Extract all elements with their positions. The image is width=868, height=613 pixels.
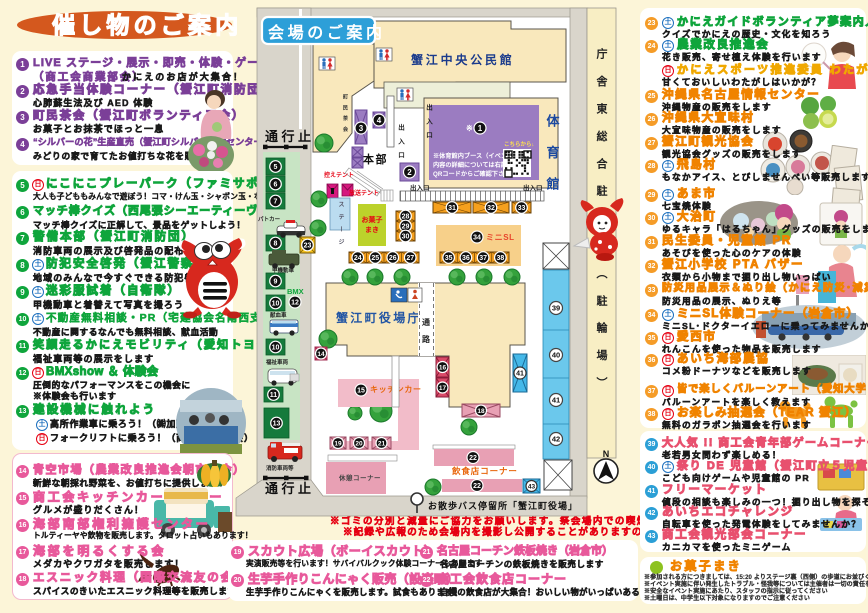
svg-text:BMX: BMX bbox=[287, 287, 304, 296]
svg-text:3: 3 bbox=[359, 124, 364, 133]
svg-text:本部: 本部 bbox=[363, 152, 388, 166]
svg-text:体育館: 体育館 bbox=[545, 113, 560, 208]
svg-text:35: 35 bbox=[445, 255, 453, 262]
svg-text:N: N bbox=[603, 449, 610, 459]
svg-text:32: 32 bbox=[487, 205, 495, 212]
svg-text:8: 8 bbox=[274, 241, 278, 248]
svg-text:39: 39 bbox=[552, 304, 560, 313]
svg-text:20: 20 bbox=[355, 440, 363, 447]
svg-text:22: 22 bbox=[473, 483, 481, 490]
svg-text:5: 5 bbox=[274, 164, 278, 171]
svg-text:町民茶会: 町民茶会 bbox=[342, 94, 349, 138]
svg-text:27: 27 bbox=[406, 255, 414, 262]
svg-text:40: 40 bbox=[552, 351, 560, 360]
svg-text:福祉車両: 福祉車両 bbox=[265, 358, 289, 366]
svg-text:25: 25 bbox=[371, 255, 379, 262]
svg-text:22: 22 bbox=[469, 455, 477, 462]
svg-text:41: 41 bbox=[516, 371, 524, 378]
svg-text:6: 6 bbox=[274, 182, 278, 189]
svg-text:4: 4 bbox=[377, 116, 382, 125]
svg-text:10: 10 bbox=[272, 301, 280, 308]
svg-text:41: 41 bbox=[552, 396, 560, 405]
svg-text:2: 2 bbox=[407, 168, 412, 177]
svg-text:7: 7 bbox=[274, 199, 278, 206]
svg-text:33: 33 bbox=[518, 205, 526, 212]
svg-text:甲機動車: 甲機動車 bbox=[272, 266, 295, 274]
svg-text:控えテント: 控えテント bbox=[324, 171, 354, 179]
svg-text:36: 36 bbox=[462, 255, 470, 262]
svg-text:飲食店コーナー: 飲食店コーナー bbox=[451, 466, 518, 476]
svg-text:まき: まき bbox=[365, 225, 379, 234]
svg-text:19: 19 bbox=[334, 440, 342, 447]
svg-text:※: ※ bbox=[466, 124, 473, 133]
svg-text:ミニSL: ミニSL bbox=[486, 233, 515, 242]
svg-text:37: 37 bbox=[479, 255, 487, 262]
svg-text:43: 43 bbox=[528, 483, 536, 490]
svg-text:34: 34 bbox=[473, 235, 481, 242]
svg-text:13: 13 bbox=[273, 421, 281, 428]
svg-text:QRコードからご確認下さい: QRコードからご確認下さい bbox=[433, 170, 510, 178]
svg-text:28: 28 bbox=[402, 214, 410, 221]
svg-text:38: 38 bbox=[496, 255, 504, 262]
svg-text:蟹江中央公民館: 蟹江中央公民館 bbox=[410, 52, 515, 67]
svg-text:通路: 通路 bbox=[421, 317, 431, 352]
svg-text:9: 9 bbox=[274, 279, 278, 286]
svg-text:16: 16 bbox=[439, 364, 447, 371]
svg-text:23: 23 bbox=[304, 243, 312, 250]
svg-text:11: 11 bbox=[270, 392, 278, 399]
svg-text:出入口: 出入口 bbox=[410, 183, 430, 192]
svg-text:12: 12 bbox=[291, 300, 299, 307]
svg-text:26: 26 bbox=[389, 255, 397, 262]
svg-text:ステージ: ステージ bbox=[337, 201, 344, 251]
svg-text:お散歩バス停留所「蟹江町役場」: お散歩バス停留所「蟹江町役場」 bbox=[428, 500, 578, 511]
svg-text:消防車両等: 消防車両等 bbox=[266, 464, 294, 472]
svg-text:出入口: 出入口 bbox=[523, 183, 543, 192]
svg-text:31: 31 bbox=[448, 205, 456, 212]
svg-text:30: 30 bbox=[402, 234, 410, 241]
svg-text:通行止: 通行止 bbox=[265, 481, 315, 496]
svg-text:18: 18 bbox=[477, 408, 485, 415]
svg-text:14: 14 bbox=[317, 351, 325, 358]
svg-text:10: 10 bbox=[272, 345, 280, 352]
svg-text:42: 42 bbox=[552, 435, 560, 444]
svg-text:15: 15 bbox=[357, 388, 365, 395]
svg-text:29: 29 bbox=[402, 224, 410, 231]
svg-text:17: 17 bbox=[439, 385, 447, 392]
svg-text:通行止: 通行止 bbox=[265, 129, 315, 144]
svg-text:こちらから↓: こちらから↓ bbox=[504, 140, 535, 148]
svg-text:献血車: 献血車 bbox=[270, 311, 287, 319]
svg-text:お菓子: お菓子 bbox=[362, 215, 383, 224]
svg-text:21: 21 bbox=[378, 440, 386, 447]
svg-text:休憩コーナー: 休憩コーナー bbox=[338, 473, 381, 482]
svg-text:1: 1 bbox=[478, 124, 483, 133]
svg-text:パトカー: パトカー bbox=[258, 215, 281, 223]
svg-text:放送テント: 放送テント bbox=[348, 189, 379, 197]
svg-text:24: 24 bbox=[354, 255, 362, 262]
svg-text:会場のご案内: 会場のご案内 bbox=[268, 23, 386, 42]
svg-text:内容の詳細については右記: 内容の詳細については右記 bbox=[433, 161, 508, 169]
